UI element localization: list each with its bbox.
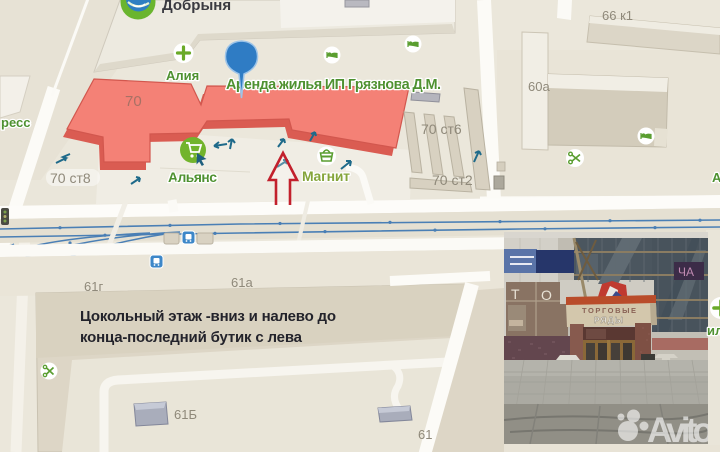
svg-text:Цокольный этаж -вниз и налево: Цокольный этаж -вниз и налево до bbox=[80, 308, 336, 325]
svg-text:70: 70 bbox=[125, 93, 142, 110]
svg-text:О: О bbox=[541, 287, 552, 303]
svg-text:Магнит: Магнит bbox=[302, 168, 350, 184]
svg-text:61а: 61а bbox=[231, 275, 253, 290]
svg-text:Алия: Алия bbox=[166, 68, 199, 83]
svg-text:Альянс: Альянс bbox=[168, 169, 217, 185]
svg-text:61г: 61г bbox=[84, 279, 103, 294]
svg-text:60а: 60а bbox=[528, 79, 550, 94]
svg-text:конца-последний бутик с лева: конца-последний бутик с лева bbox=[80, 329, 303, 346]
svg-text:61: 61 bbox=[418, 427, 432, 442]
svg-text:ресс: ресс bbox=[1, 115, 30, 130]
svg-text:ЧА: ЧА bbox=[678, 265, 694, 279]
svg-text:Ат: Ат bbox=[712, 170, 720, 185]
svg-text:Т: Т bbox=[511, 286, 520, 302]
svg-text:ТОРГОВЫЕ: ТОРГОВЫЕ bbox=[582, 306, 636, 315]
svg-text:70 ст6: 70 ст6 bbox=[421, 121, 462, 137]
svg-text:61Б: 61Б bbox=[174, 407, 197, 422]
svg-text:Аренда жилья ИП Грязнова Д.М.: Аренда жилья ИП Грязнова Д.М. bbox=[226, 77, 441, 93]
svg-text:66 к1: 66 к1 bbox=[602, 8, 633, 23]
svg-text:Добрыня: Добрыня bbox=[162, 0, 231, 14]
svg-text:70 ст8: 70 ст8 bbox=[50, 170, 91, 186]
svg-text:РЯДЫ: РЯДЫ bbox=[594, 315, 623, 325]
svg-text:70 ст2: 70 ст2 bbox=[432, 172, 473, 188]
svg-text:ил: ил bbox=[707, 323, 720, 338]
